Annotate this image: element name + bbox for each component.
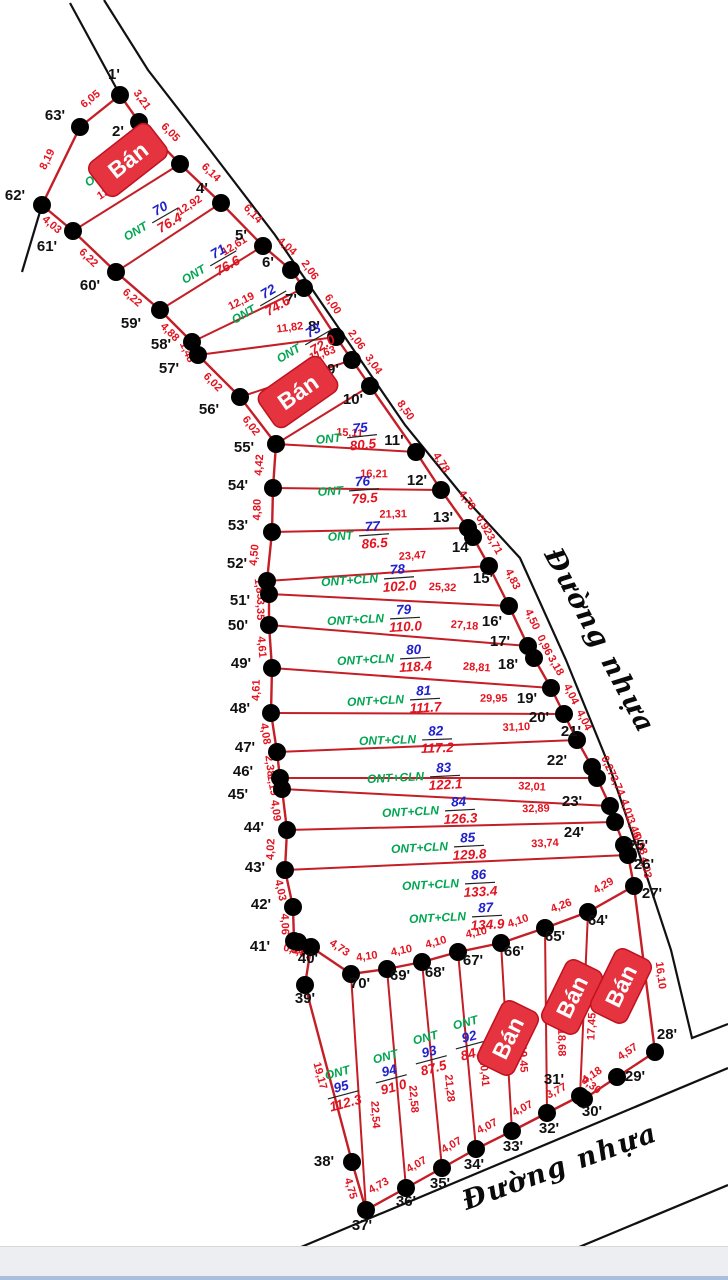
parcel-label-group: ONT9491.0 <box>368 1046 411 1099</box>
vertex-label: 16' <box>482 613 502 630</box>
parcel-code: ONT <box>317 483 345 499</box>
vertex-dot <box>263 523 281 541</box>
vertex-dot <box>588 769 606 787</box>
vertex-dot <box>171 155 189 173</box>
vertex-label: 49' <box>231 655 251 672</box>
vertex-label: 48' <box>230 700 250 717</box>
vertex-dot <box>500 597 518 615</box>
vertex-dot <box>258 572 276 590</box>
width-label: 32,89 <box>522 803 550 816</box>
edge-length-label: 4,07 <box>439 1135 464 1156</box>
vertex-dot <box>361 377 379 395</box>
vertex-label: 54' <box>228 477 248 494</box>
edge-length-label: 4,78 <box>430 451 452 475</box>
width-label: 29,95 <box>480 693 508 705</box>
vertex-dot <box>267 435 285 453</box>
vertex-label: 11' <box>384 432 403 449</box>
parcel-number: 84 <box>451 794 467 810</box>
parcel-number: 86 <box>471 867 487 883</box>
parcel-area: 79.5 <box>351 490 379 507</box>
vertex-label: 13' <box>433 509 453 526</box>
vertex-label: 61' <box>37 238 57 255</box>
parcel-area: 134.9 <box>470 916 505 933</box>
width-label: 22,58 <box>406 1085 420 1113</box>
edge-length-label: 4,10 <box>424 934 448 951</box>
vertex-label: 50' <box>228 617 248 634</box>
edge-length-label: 4,04 <box>275 235 300 259</box>
parcel-area: 129.8 <box>452 846 487 863</box>
parcel-label-group: ONT+CLN87134.9 <box>408 899 505 936</box>
vertex-label: 53' <box>228 517 248 534</box>
edge-length-label: 4,10 <box>506 912 530 930</box>
vertex-label: 28' <box>657 1026 677 1043</box>
edge-length-label: 4,08 <box>258 722 273 745</box>
parcel-label-group: ONT+CLN83122.1 <box>366 759 462 796</box>
parcel-area: 118.4 <box>399 658 433 675</box>
edge-length-label: 4,07 <box>404 1154 429 1175</box>
parcel-area: 102.0 <box>382 578 417 595</box>
vertex-dot <box>464 528 482 546</box>
edge-length-label: 4,73 <box>366 1175 391 1196</box>
edge-length-label: 2,06 <box>299 258 321 282</box>
edge-length-label: 4,42 <box>253 454 266 476</box>
vertex-label: 44' <box>244 819 264 836</box>
edge-length-label: 4,02 <box>264 838 277 860</box>
width-label: 17,45 <box>585 1012 598 1040</box>
vertex-dot <box>264 479 282 497</box>
parcel-number: 75 <box>352 420 369 437</box>
vertex-dot <box>276 861 294 879</box>
vertex-label: 60' <box>80 277 100 294</box>
vertex-label: 52' <box>227 555 247 572</box>
road-label-right: Đường nhựa <box>537 542 661 739</box>
vertex-dot <box>601 797 619 815</box>
vertex-dot <box>212 194 230 212</box>
parcel-area: 117.2 <box>421 740 455 756</box>
edge-length-label: 4,03 <box>40 213 64 236</box>
edge-length-label: 4,10 <box>390 943 413 959</box>
parcel-code: ONT+CLN <box>337 651 395 668</box>
edge-length-label: 4,09 <box>268 799 283 822</box>
vertex-label: 37' <box>352 1217 372 1234</box>
vertex-dot <box>71 118 89 136</box>
vertex-label: 27' <box>642 885 662 902</box>
vertex-label: 63' <box>45 107 65 124</box>
edge-length-label: 4,61 <box>250 679 262 701</box>
width-label: 11,82 <box>276 320 304 335</box>
for-sale-badge: Bán <box>85 120 171 200</box>
width-label: 21,31 <box>379 508 407 521</box>
divider-line <box>269 594 509 606</box>
vertex-label: 36' <box>396 1193 416 1210</box>
parcel-code: ONT+CLN <box>327 611 385 628</box>
vertex-label: 1' <box>108 66 120 83</box>
parcel-code: ONT <box>121 218 151 244</box>
parcel-area: 133.4 <box>463 883 498 900</box>
vertex-label: 24' <box>564 824 584 841</box>
vertex-label: 18' <box>498 656 518 673</box>
vertex-dot <box>262 704 280 722</box>
parcel-number: 81 <box>416 683 432 699</box>
parcel-label-group: ONT+CLN86133.4 <box>401 866 498 903</box>
edge-length-label: 4,03 <box>272 879 288 902</box>
vertex-label: 58' <box>151 336 171 353</box>
vertex-label: 26' <box>634 856 654 873</box>
vertex-dot <box>254 237 272 255</box>
parcel-number: 82 <box>428 723 444 739</box>
parcel-code: ONT <box>327 528 355 544</box>
edge-length-label: 3,74 <box>607 773 627 798</box>
vertex-dot <box>525 649 543 667</box>
parcel-code: ONT+CLN <box>391 839 449 856</box>
edge-length-label: 6,05 <box>79 88 103 111</box>
parcel-number: 76 <box>354 473 371 489</box>
edge-length-label: 4,07 <box>510 1098 535 1118</box>
edge-length-label: 4,83 <box>502 567 522 592</box>
vertex-label: 64' <box>588 912 608 929</box>
width-label: 33,74 <box>531 837 560 850</box>
edge-length-label: 3,35 <box>254 599 266 620</box>
edge-length-label: 4,50 <box>248 544 262 567</box>
vertex-label: 38' <box>314 1153 334 1170</box>
vertex-label: 21' <box>561 723 581 740</box>
vertex-label: 32' <box>539 1120 559 1137</box>
parcel-code: ONT+CLN <box>347 692 405 709</box>
edge-length-label: 3,04 <box>362 352 385 377</box>
map-viewer: 13,2312,9212,6112,1911,8211,6315,1116,21… <box>0 0 728 1280</box>
edge-length-label: 6,14 <box>241 202 265 226</box>
vertex-label: 10' <box>343 391 363 408</box>
vertex-label: 31' <box>544 1071 564 1088</box>
parcel-label-group: ONT9387.5 <box>408 1027 451 1080</box>
vertex-label: 45' <box>228 786 248 803</box>
edge-length-label: 3,71 <box>484 532 505 557</box>
vertex-label: 43' <box>245 859 265 876</box>
vertex-label: 39' <box>295 990 315 1007</box>
edge-length-label: 2,06 <box>345 328 367 352</box>
parcel-code: ONT+CLN <box>409 909 467 926</box>
edge-length-label: 16,10 <box>653 961 668 990</box>
vertex-label: 40' <box>298 950 318 967</box>
vertex-label: 68' <box>425 964 445 981</box>
vertex-label: 12' <box>407 472 427 489</box>
vertex-label: 59' <box>121 315 141 332</box>
edge-length-label: 4,61 <box>255 636 268 658</box>
vertex-dot <box>646 1043 664 1061</box>
width-label: 22,54 <box>368 1101 382 1130</box>
width-label: 32,01 <box>518 780 546 793</box>
parcel-number: 80 <box>406 642 422 658</box>
vertex-label: 35' <box>430 1175 450 1192</box>
parcel-label-group: ONT+CLN85129.8 <box>390 829 487 866</box>
edge-length-label: 3,18 <box>545 653 566 678</box>
edge-length-label: 4,04 <box>561 682 582 707</box>
vertex-label: 22' <box>547 752 567 769</box>
vertex-dot <box>64 222 82 240</box>
vertex-label: 47' <box>235 739 255 756</box>
vertex-label: 55' <box>234 439 254 456</box>
vertex-label: 15' <box>473 570 493 587</box>
edge-length-label: 4,26 <box>549 897 573 916</box>
vertex-dot <box>278 821 296 839</box>
parcel-code: ONT <box>315 430 343 447</box>
parcel-label-group: ONT7076.4 <box>117 194 186 252</box>
parcel-label-group: ONT+CLN84126.3 <box>381 793 478 830</box>
width-label: 27,18 <box>450 619 478 633</box>
parcel-label-group: ONT+CLN82117.2 <box>359 723 455 758</box>
cadastral-map-svg: 13,2312,9212,6112,1911,8211,6315,1116,21… <box>0 0 728 1280</box>
vertex-dot <box>571 1087 589 1105</box>
parcel-code: ONT+CLN <box>402 876 460 893</box>
edge-length-label: 4,73 <box>327 937 351 959</box>
parcel-code: ONT+CLN <box>367 769 425 786</box>
parcel-number: 87 <box>478 900 495 916</box>
parcel-label-group: ONT+CLN80118.4 <box>336 641 432 678</box>
vertex-label: 29' <box>625 1068 645 1085</box>
vertex-label: 41' <box>250 938 270 955</box>
parcel-number: 83 <box>436 760 452 776</box>
vertex-label: 51' <box>230 592 250 609</box>
edge-length-label: 3,21 <box>131 88 153 112</box>
vertex-label: 30' <box>582 1103 602 1120</box>
vertex-label: 57' <box>159 360 179 377</box>
vertex-label: 33' <box>503 1138 523 1155</box>
vertex-dot <box>271 769 289 787</box>
vertex-label: 5' <box>235 227 247 244</box>
parcel-code: ONT+CLN <box>382 803 440 820</box>
parcel-code: ONT+CLN <box>321 571 379 589</box>
parcel-number: 78 <box>389 561 406 577</box>
edge-length-label: 4,10 <box>356 949 379 964</box>
vertex-label: 23' <box>562 793 582 810</box>
vertex-label: 17' <box>490 633 510 650</box>
parcel-area: 122.1 <box>428 776 463 793</box>
edge-length-label: 8,19 <box>37 147 57 172</box>
parcel-area: 86.5 <box>361 535 389 552</box>
vertex-label: 66' <box>504 943 524 960</box>
for-sale-badge: Bán <box>475 998 542 1078</box>
vertex-dot <box>295 279 313 297</box>
parcel-label-group: ONT7786.5 <box>327 518 390 554</box>
vertex-label: 20' <box>529 709 549 726</box>
edge-length-label: 8,50 <box>394 398 416 422</box>
width-label: 31,10 <box>502 721 530 734</box>
vertex-dot <box>183 333 201 351</box>
edge-length-label: 6,02 <box>240 414 263 438</box>
vertex-dot <box>555 705 573 723</box>
vertex-dot <box>268 743 286 761</box>
parcel-area: 111.7 <box>409 699 443 716</box>
vertex-dot <box>542 679 560 697</box>
edge-length-label: 6,00 <box>322 292 344 316</box>
edge-length-label: 4,57 <box>616 1041 640 1063</box>
vertex-label: 46' <box>233 763 253 780</box>
vertex-dot <box>231 388 249 406</box>
vertex-dot <box>284 898 302 916</box>
vertex-dot <box>407 443 425 461</box>
vertex-dot <box>111 86 129 104</box>
parcel-label-group: ONT+CLN78102.0 <box>320 561 417 600</box>
vertex-label: 34' <box>464 1156 484 1173</box>
parcel-code: ONT+CLN <box>359 732 417 748</box>
vertex-dot <box>606 813 624 831</box>
vertex-label: 56' <box>199 401 219 418</box>
vertex-dot <box>263 659 281 677</box>
edge-length-label: 4,06 <box>278 913 291 935</box>
vertex-label: 67' <box>463 952 483 969</box>
vertex-label: 62' <box>5 187 25 204</box>
parcel-area: 126.3 <box>443 810 478 827</box>
vertex-dot <box>608 1068 626 1086</box>
parcel-area: 110.0 <box>389 618 423 635</box>
edge-length-label: 4,50 <box>522 607 542 631</box>
edge-length-label: 6,22 <box>120 286 144 309</box>
vertex-label: 42' <box>251 896 271 913</box>
vertex-dot <box>260 616 278 634</box>
width-label: 28,81 <box>463 661 491 675</box>
footer-accent-line <box>0 1276 728 1280</box>
vertex-dot <box>107 263 125 281</box>
vertex-dot <box>343 351 361 369</box>
edge-length-label: 6,22 <box>76 246 100 269</box>
edge-length-label: 4,29 <box>591 875 616 896</box>
footer-bar <box>0 1246 728 1280</box>
parcel-number: 79 <box>396 602 412 618</box>
width-label: 21,28 <box>442 1074 457 1103</box>
vertex-dot <box>289 933 307 951</box>
vertex-label: 4' <box>196 180 208 197</box>
vertex-dot <box>343 1153 361 1171</box>
vertex-label: 65' <box>545 928 565 945</box>
vertex-label: 69' <box>390 967 410 984</box>
vertex-label: 6' <box>262 254 274 271</box>
vertex-label: 19' <box>517 690 537 707</box>
vertex-dot <box>282 261 300 279</box>
vertex-dot <box>432 481 450 499</box>
vertex-dot <box>33 196 51 214</box>
parcel-area: 80.5 <box>349 436 377 454</box>
width-label: 25,32 <box>428 581 456 594</box>
vertex-dot <box>151 301 169 319</box>
edge-length-label: 6,02 <box>201 371 225 395</box>
parcel-number: 77 <box>364 518 382 534</box>
edge-length-label: 4,80 <box>251 499 263 521</box>
vertex-dot <box>625 877 643 895</box>
vertex-label: 70' <box>350 975 370 992</box>
parcel-number: 85 <box>460 830 476 846</box>
edge-length-label: 4,07 <box>475 1116 500 1136</box>
